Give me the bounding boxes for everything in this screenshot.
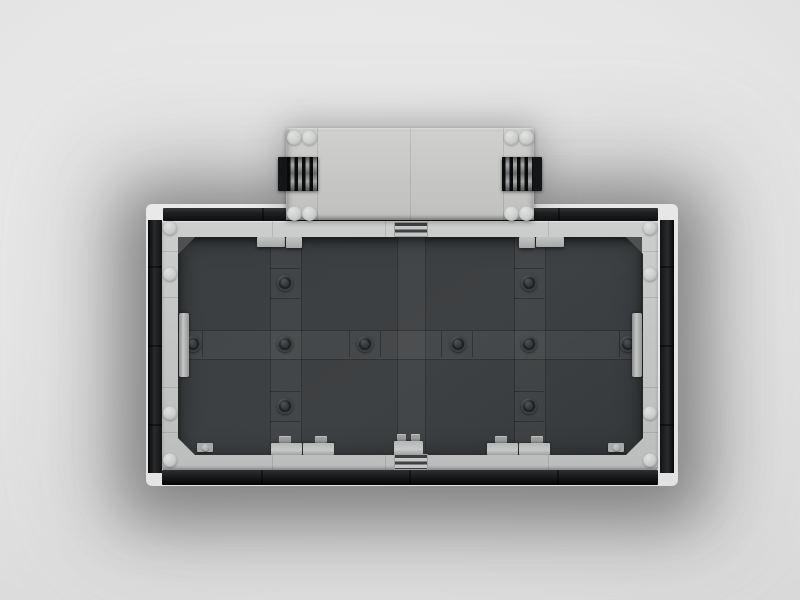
bottom-hinge xyxy=(271,443,302,455)
box-grille-left xyxy=(278,157,318,191)
dark-stud xyxy=(277,398,293,414)
box-stud xyxy=(504,206,519,221)
bottom-hinge xyxy=(303,443,334,455)
tile-seam xyxy=(270,268,300,269)
frame-stud xyxy=(643,267,657,281)
bottom-hinge xyxy=(519,443,550,455)
rail-seam xyxy=(148,424,162,426)
frame-seam xyxy=(385,454,386,470)
edge-clip-left xyxy=(179,313,189,377)
tile-seam xyxy=(472,331,473,357)
frame-seam xyxy=(162,297,178,298)
frame-stud xyxy=(643,221,657,235)
dark-stud xyxy=(521,275,537,291)
frame-stud xyxy=(163,406,177,420)
box-seam xyxy=(410,128,411,220)
frame-stud xyxy=(163,453,177,467)
rail-seam xyxy=(660,266,674,268)
frame-grille-tile-bottom xyxy=(394,454,428,470)
tray-interior xyxy=(178,237,643,455)
frame-stud xyxy=(163,221,177,235)
dark-stud xyxy=(521,398,537,414)
box-stud xyxy=(287,206,302,221)
top-plate xyxy=(286,237,302,248)
box-stud xyxy=(519,130,534,145)
tile-seam xyxy=(514,268,544,269)
tile-band-middle xyxy=(178,330,643,360)
box-stud xyxy=(519,206,534,221)
bottom-hinge xyxy=(487,443,518,455)
dark-stud xyxy=(357,336,373,352)
frame-stud xyxy=(643,453,657,467)
frame-seam xyxy=(272,221,273,237)
box-stud xyxy=(302,130,317,145)
rail-seam xyxy=(148,266,162,268)
edge-clip-right xyxy=(632,313,642,377)
top-plate xyxy=(519,237,535,248)
frame-stud xyxy=(643,406,657,420)
frame-seam xyxy=(272,454,273,470)
box-stud xyxy=(504,130,519,145)
box-stud xyxy=(287,130,302,145)
tile-seam xyxy=(514,421,544,422)
frame-seam xyxy=(162,387,178,388)
rail-seam xyxy=(557,470,559,485)
corner-piece-stud xyxy=(202,444,209,451)
rail-seam xyxy=(262,208,264,221)
frame-seam xyxy=(642,432,658,433)
frame-seam xyxy=(162,432,178,433)
tile-seam xyxy=(202,331,203,357)
tray-rail-right xyxy=(660,220,674,473)
rail-seam xyxy=(558,208,560,221)
dark-stud xyxy=(277,336,293,352)
frame-grille-tile-top xyxy=(394,222,428,237)
frame-seam xyxy=(548,454,549,470)
render-canvas xyxy=(0,0,800,600)
top-plate xyxy=(257,237,285,247)
tile-seam xyxy=(270,391,300,392)
hinge-tab xyxy=(279,436,291,443)
top-plate xyxy=(536,237,564,247)
hinge-tab xyxy=(411,434,420,441)
hinge-tab xyxy=(495,436,507,443)
tile-seam xyxy=(380,331,381,357)
box-grille-right xyxy=(502,157,542,191)
rail-seam xyxy=(660,424,674,426)
rail-seam xyxy=(261,470,263,485)
dark-stud xyxy=(521,336,537,352)
hinge-tab xyxy=(315,436,327,443)
hinge-box xyxy=(286,128,534,220)
frame-seam xyxy=(162,251,178,252)
tray-rail-bottom xyxy=(162,470,658,485)
tile-seam xyxy=(441,331,442,357)
rail-seam xyxy=(660,345,674,347)
frame-stud xyxy=(163,267,177,281)
tile-seam xyxy=(349,331,350,357)
rail-seam xyxy=(409,470,411,485)
tray-rail-left xyxy=(148,220,162,473)
frame-seam xyxy=(385,221,386,237)
frame-seam xyxy=(642,387,658,388)
dark-stud xyxy=(277,275,293,291)
tile-seam xyxy=(270,421,300,422)
frame-seam xyxy=(642,251,658,252)
tile-seam xyxy=(270,298,300,299)
corner-piece-stud xyxy=(613,444,620,451)
box-stud xyxy=(302,206,317,221)
grille-bars xyxy=(287,157,318,191)
tile-seam xyxy=(514,391,544,392)
tray-frame xyxy=(162,221,658,470)
rail-seam xyxy=(148,345,162,347)
hinge-tab xyxy=(397,434,406,441)
hinge-tab xyxy=(531,436,543,443)
dark-stud xyxy=(450,336,466,352)
grille-bars xyxy=(502,157,533,191)
bottom-hinge-center xyxy=(394,441,423,455)
frame-seam xyxy=(642,297,658,298)
tile-seam xyxy=(514,298,544,299)
frame-seam xyxy=(548,221,549,237)
